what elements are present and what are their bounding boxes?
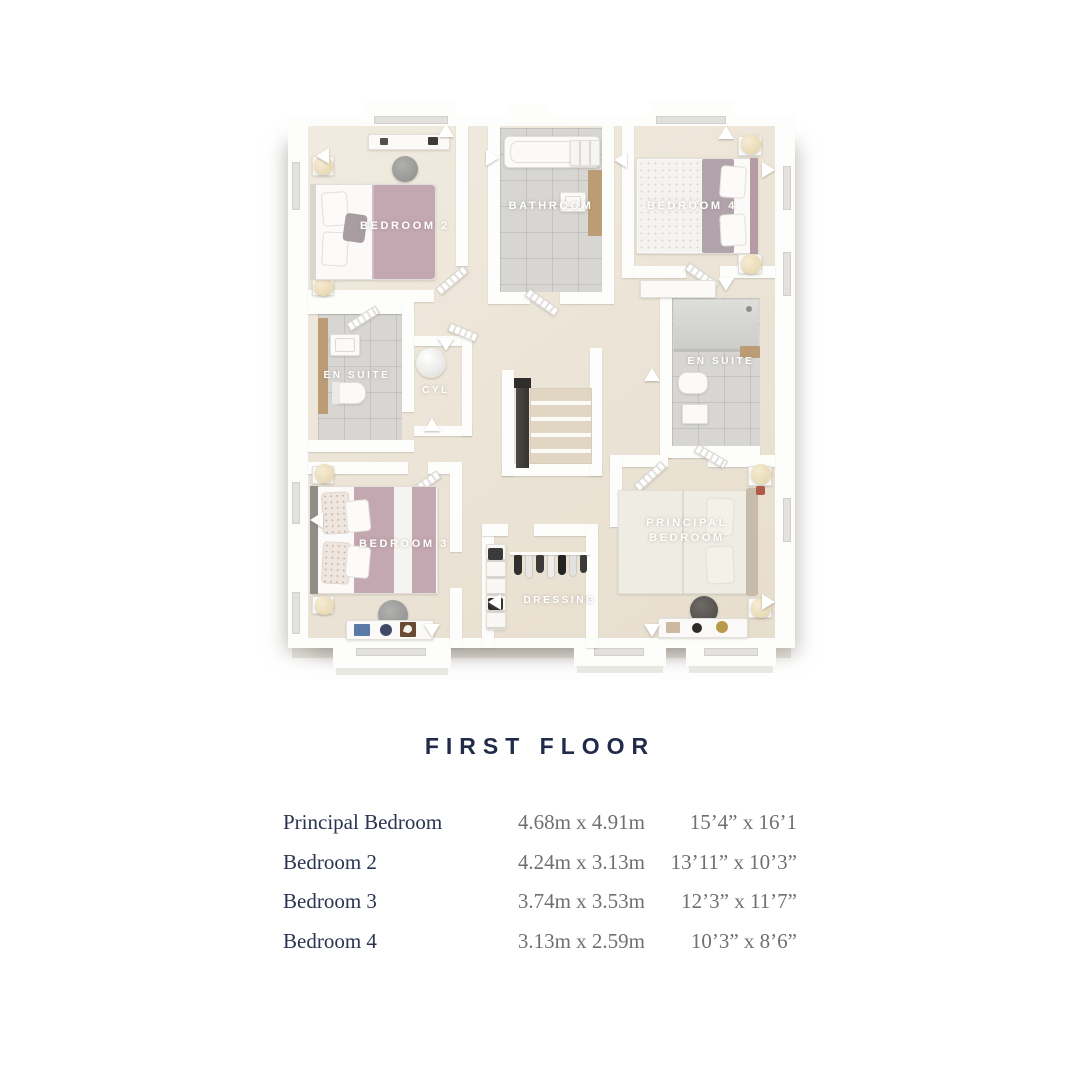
opening-arrow-left — [310, 512, 323, 528]
opening-arrow-up — [718, 126, 734, 139]
stair-newel — [514, 378, 531, 388]
room-size-metric: 3.74m x 3.53m — [460, 889, 645, 914]
window — [292, 592, 300, 634]
desk-items — [428, 137, 438, 145]
room-name: Bedroom 4 — [283, 929, 460, 954]
room-label-bedroom4: BEDROOM 4 — [630, 200, 754, 212]
room-label-bedroom2: BEDROOM 2 — [343, 220, 467, 232]
sink-basin — [335, 338, 355, 352]
window — [783, 252, 791, 296]
wall — [634, 266, 686, 278]
window — [783, 498, 791, 542]
room-label-bedroom3: BEDROOM 3 — [342, 538, 466, 550]
lamp — [315, 596, 334, 615]
window — [783, 166, 791, 210]
room-label-principal: PRINCIPAL BEDROOM — [624, 516, 750, 546]
table-row: Bedroom 3 3.74m x 3.53m 12’3” x 11’7” — [283, 889, 797, 929]
lamp — [741, 254, 761, 274]
table-row: Principal Bedroom 4.68m x 4.91m 15’4” x … — [283, 810, 797, 850]
floor-plan: BEDROOM 2 BATHROOM BEDROOM 4 EN SUITE CY… — [288, 100, 795, 672]
room-size-imperial: 15’4” x 16’1 — [645, 810, 797, 835]
hot-water-cylinder — [416, 348, 446, 378]
wall — [308, 440, 414, 452]
stair-railing — [516, 382, 529, 468]
opening-arrow-down — [424, 624, 440, 637]
desk-items — [380, 138, 388, 145]
wall — [308, 302, 414, 314]
wall-bay-top-center — [510, 104, 550, 122]
opening-arrow-down — [718, 278, 734, 291]
wall — [502, 370, 514, 476]
table-row: Bedroom 2 4.24m x 3.13m 13’11” x 10’3” — [283, 850, 797, 890]
window — [292, 162, 300, 210]
wall — [586, 524, 598, 648]
room-size-metric: 3.13m x 2.59m — [460, 929, 645, 954]
sink — [682, 404, 708, 424]
room-name: Bedroom 3 — [283, 889, 460, 914]
opening-arrow-right — [762, 162, 775, 178]
room-label-dressing: DRESSING — [510, 595, 610, 606]
lamp — [741, 134, 761, 154]
garment — [525, 555, 533, 579]
table-row: Bedroom 4 3.13m x 2.59m 10’3” x 8’6” — [283, 929, 797, 969]
towel-shelf — [570, 140, 600, 166]
pillow — [719, 213, 747, 246]
chair — [392, 156, 418, 182]
staircase — [530, 388, 592, 464]
toilet — [678, 372, 708, 394]
pillow — [344, 499, 371, 533]
wall — [560, 292, 614, 304]
bed-headboard — [310, 486, 318, 594]
opening-arrow-down — [438, 338, 454, 351]
wall — [456, 126, 468, 266]
pillow — [345, 545, 372, 579]
desk-item — [716, 621, 728, 633]
garment — [558, 555, 566, 575]
garment — [536, 555, 544, 573]
garment — [514, 555, 522, 575]
room-label-cyl: CYL — [406, 385, 466, 396]
wall — [488, 292, 530, 304]
window — [704, 648, 758, 656]
wall — [482, 524, 508, 536]
shower-head — [746, 306, 752, 312]
desk-item — [692, 623, 702, 633]
opening-arrow-up — [438, 124, 454, 137]
lamp — [751, 464, 771, 484]
room-size-metric: 4.24m x 3.13m — [460, 850, 645, 875]
desk-book — [354, 624, 370, 636]
pillow — [705, 545, 735, 584]
room-name: Bedroom 2 — [283, 850, 460, 875]
pillow — [719, 165, 747, 199]
window — [656, 116, 726, 124]
bed-headboard — [310, 184, 316, 280]
room-size-imperial: 13’11” x 10’3” — [645, 850, 797, 875]
opening-arrow-left — [316, 148, 329, 164]
room-name: Principal Bedroom — [283, 810, 460, 835]
bed-duvet — [372, 185, 435, 279]
opening-arrow-up — [644, 368, 660, 381]
room-size-imperial: 10’3” x 8’6” — [645, 929, 797, 954]
opening-arrow-right — [762, 594, 775, 610]
wall — [414, 426, 472, 436]
wall — [450, 588, 462, 648]
window — [374, 116, 448, 124]
room-size-imperial: 12’3” x 11’7” — [645, 889, 797, 914]
garment — [569, 555, 577, 577]
room-label-ensuite-right: EN SUITE — [676, 356, 766, 367]
folded-clothes — [488, 548, 503, 560]
room-label-bathroom: BATHROOM — [501, 200, 601, 212]
dresser — [640, 280, 716, 298]
window — [292, 482, 300, 524]
opening-arrow-up — [424, 418, 440, 431]
window — [594, 648, 644, 656]
wall — [660, 292, 672, 458]
room-size-metric: 4.68m x 4.91m — [460, 810, 645, 835]
desk-item — [666, 622, 680, 633]
lamp — [315, 464, 334, 483]
page-title: FIRST FLOOR — [0, 733, 1080, 760]
window — [356, 648, 426, 656]
nightstand-item — [756, 486, 765, 495]
garment — [547, 555, 555, 579]
desk-bowl — [380, 624, 392, 636]
opening-arrow-left — [614, 152, 627, 168]
toilet-tank — [332, 382, 340, 404]
opening-arrow-left — [488, 594, 501, 610]
opening-arrow-down — [644, 624, 660, 637]
vanity-counter — [318, 318, 328, 414]
garment — [580, 555, 587, 573]
dimensions-table: Principal Bedroom 4.68m x 4.91m 15’4” x … — [283, 810, 797, 968]
room-label-ensuite-left: EN SUITE — [312, 370, 402, 381]
wall — [602, 126, 614, 292]
opening-arrow-right — [486, 150, 499, 166]
